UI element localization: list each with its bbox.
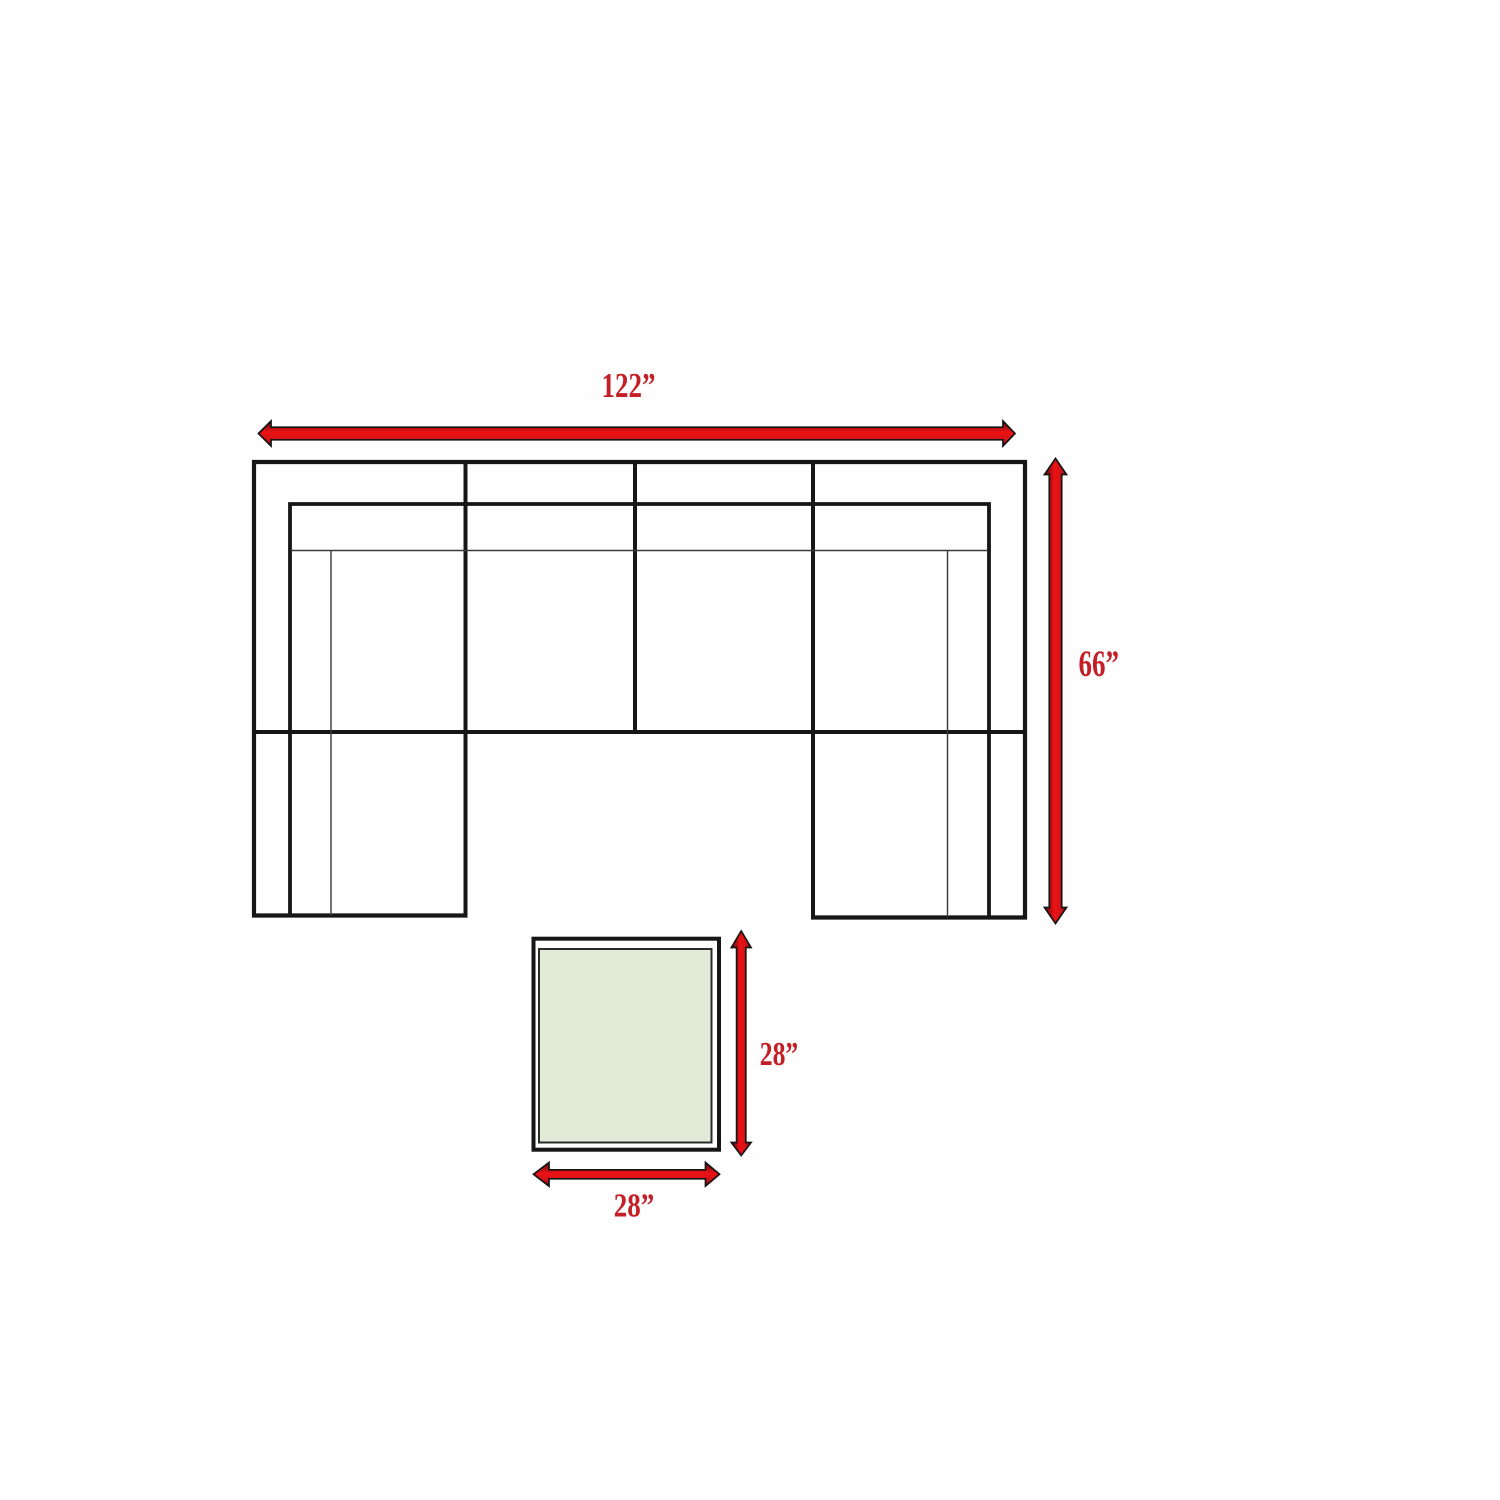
svg-text:28”: 28” (760, 1036, 799, 1073)
svg-text:122”: 122” (602, 366, 656, 405)
svg-text:28”: 28” (614, 1188, 655, 1225)
svg-text:66”: 66” (1078, 644, 1119, 685)
